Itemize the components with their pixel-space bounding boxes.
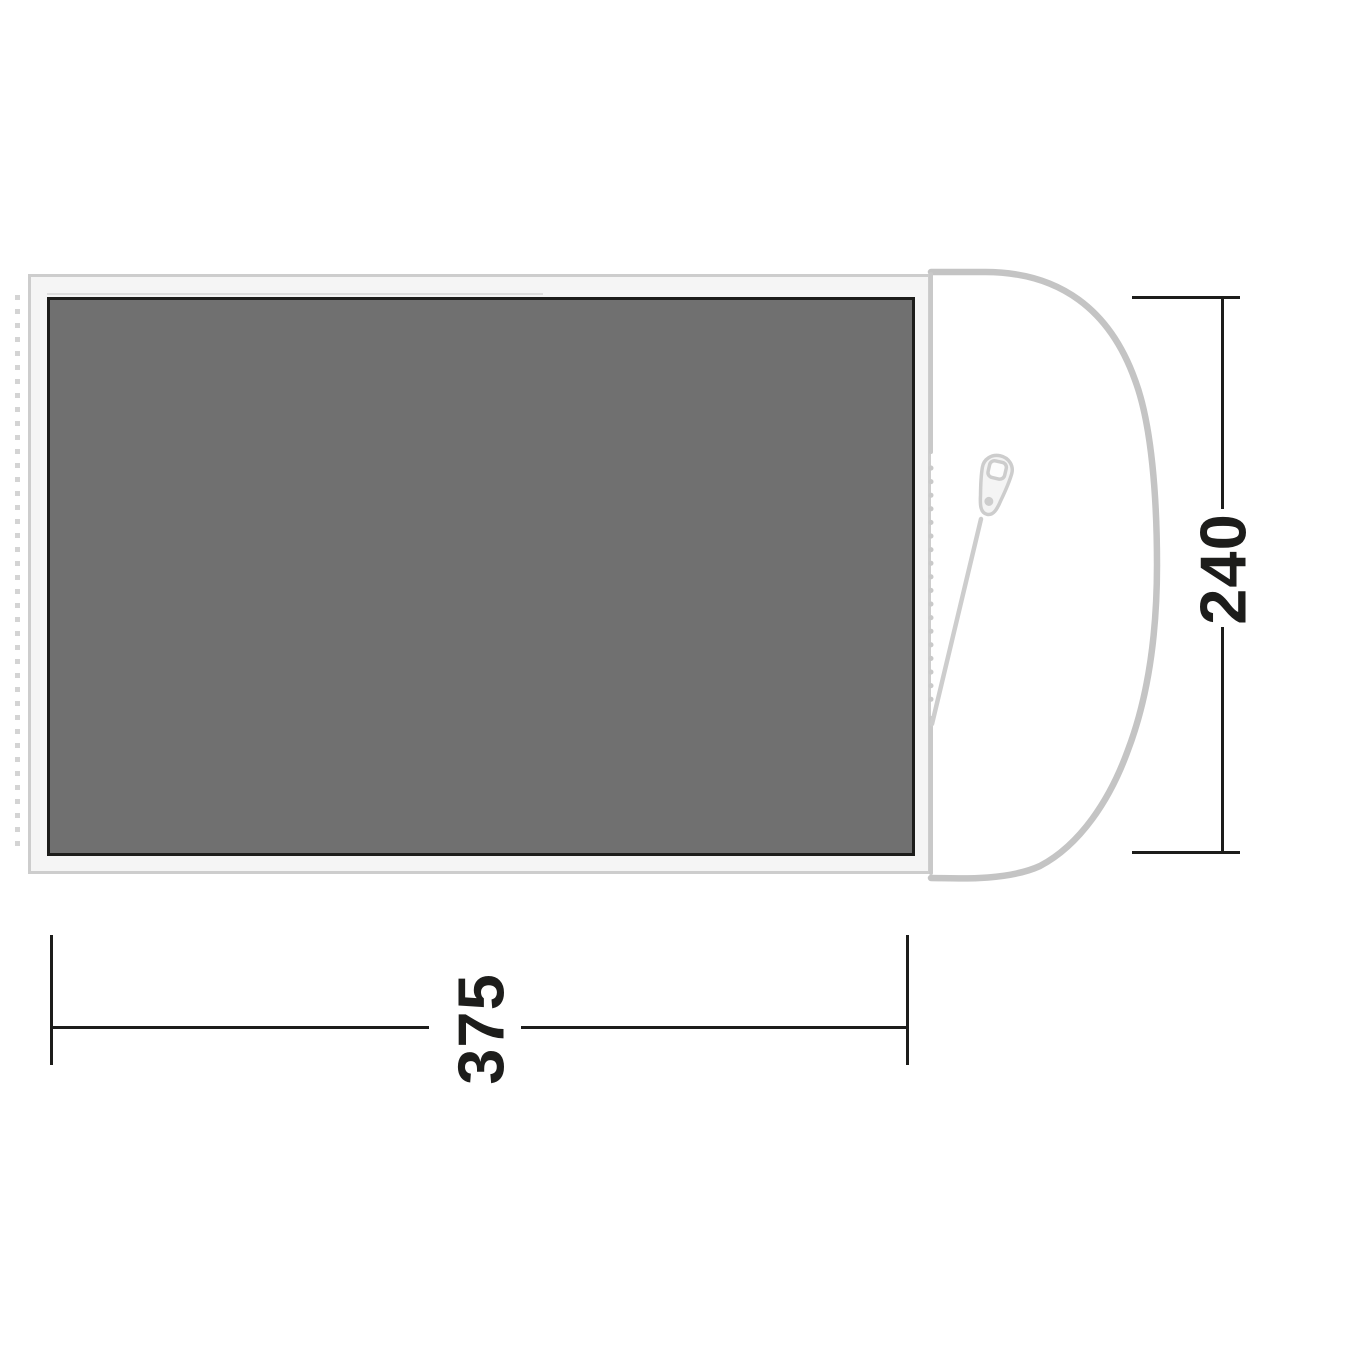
width-dim-tick-left xyxy=(50,935,53,1065)
floorplan-diagram: 375 240 xyxy=(0,0,1353,1353)
groundsheet-area xyxy=(47,297,915,856)
width-dim-line-right xyxy=(521,1026,908,1029)
width-dimension-label: 375 xyxy=(449,973,514,1084)
width-dim-line-left xyxy=(52,1026,429,1029)
door-curve-outline xyxy=(931,272,1157,878)
height-dim-line-bottom xyxy=(1221,627,1224,854)
width-dim-tick-right xyxy=(906,935,909,1065)
height-dim-line-top xyxy=(1221,298,1224,509)
height-dimension-label: 240 xyxy=(1191,513,1256,624)
fabric-seam-line xyxy=(47,293,543,295)
pegging-dotted-line xyxy=(15,295,20,853)
zipper-pull-icon xyxy=(972,452,1015,517)
zipper-cord xyxy=(932,519,981,724)
